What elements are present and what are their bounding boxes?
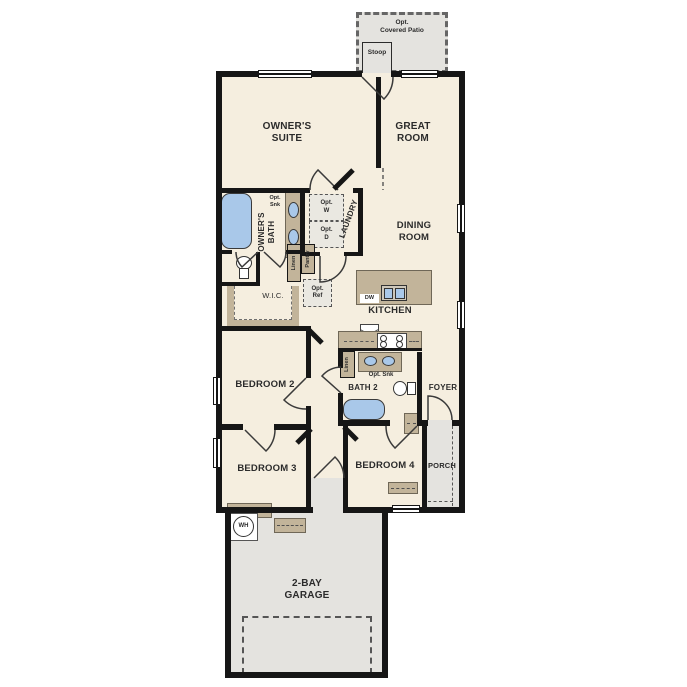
opt-sink-bath2-label: Opt. Snk xyxy=(362,371,400,380)
owners-bath-sink xyxy=(288,229,299,245)
wall xyxy=(338,393,343,421)
garage-door-outline xyxy=(242,616,372,674)
dining-room-label: DINING ROOM xyxy=(379,219,449,245)
wall xyxy=(452,420,465,426)
bath2-toilet-tank xyxy=(407,382,416,395)
wall xyxy=(382,513,388,678)
linen-kitchen-label: Linen xyxy=(334,357,361,372)
wall xyxy=(225,672,388,678)
sink-basin xyxy=(395,288,405,299)
bedroom3-label: BEDROOM 3 xyxy=(223,463,311,475)
owners-bath-label: OWNER'S BATH xyxy=(245,206,289,258)
wall xyxy=(344,252,363,256)
bedroom3-closet xyxy=(274,518,306,533)
window xyxy=(213,438,221,468)
wall xyxy=(306,326,311,378)
counter-dash xyxy=(409,341,419,342)
window xyxy=(401,70,438,78)
owners-toilet-tank xyxy=(239,268,249,279)
optional-refrigerator: Opt. Ref xyxy=(303,279,332,307)
bedroom4-label: BEDROOM 4 xyxy=(350,460,420,472)
floor-plan: Opt. W Opt. D Opt. Ref DW WH xyxy=(0,0,687,687)
counter-dash xyxy=(344,341,374,342)
wall xyxy=(417,352,422,420)
foyer-label: FOYER xyxy=(423,382,463,393)
porch-dash-line xyxy=(428,501,453,502)
window xyxy=(213,377,221,405)
owners-suite-label: OWNER'S SUITE xyxy=(237,119,337,147)
wic-label: W.I.C. xyxy=(250,291,296,301)
wall xyxy=(221,250,232,254)
wall xyxy=(221,424,243,430)
wall xyxy=(343,426,348,510)
wall xyxy=(338,348,422,351)
window xyxy=(457,204,465,233)
bath2-sink xyxy=(382,356,395,366)
wall xyxy=(221,188,310,193)
kitchen-label: KITCHEN xyxy=(357,305,423,316)
bath2-sink xyxy=(364,356,377,366)
wall xyxy=(300,188,305,256)
bath2-label: BATH 2 xyxy=(340,382,386,393)
wall xyxy=(221,282,260,286)
optional-washer: Opt. W xyxy=(309,194,344,221)
garage-label: 2-BAY GARAGE xyxy=(267,577,347,603)
pantry-label: Pantry xyxy=(293,252,323,266)
burner xyxy=(396,341,403,348)
stoop-label: Stoop xyxy=(362,48,392,59)
window xyxy=(457,301,465,329)
window xyxy=(392,505,420,513)
water-heater: WH xyxy=(233,516,254,537)
porch-label: PORCH xyxy=(423,461,461,471)
optional-refrigerator-label: Opt. Ref xyxy=(304,280,331,306)
opt-sink-owners-label: Opt. Snk xyxy=(264,195,286,208)
dishwasher-label: DW xyxy=(360,294,379,303)
sink-basin xyxy=(384,288,394,299)
optional-washer-label: Opt. W xyxy=(310,195,343,220)
great-room-label: GREAT ROOM xyxy=(377,119,449,147)
garage-entry-hall xyxy=(310,478,344,513)
bath2-toilet-bowl xyxy=(393,381,407,396)
covered-patio-label: Opt. Covered Patio xyxy=(360,16,444,38)
wall xyxy=(459,71,465,513)
burner xyxy=(380,341,387,348)
wall xyxy=(221,326,310,331)
owners-bath-sink xyxy=(288,202,299,218)
wall xyxy=(225,513,231,678)
window xyxy=(258,70,312,78)
foyer-closet xyxy=(388,482,418,494)
island-double-sink xyxy=(381,285,407,301)
bath2-tub xyxy=(343,399,385,420)
bedroom2-label: BEDROOM 2 xyxy=(221,379,309,391)
